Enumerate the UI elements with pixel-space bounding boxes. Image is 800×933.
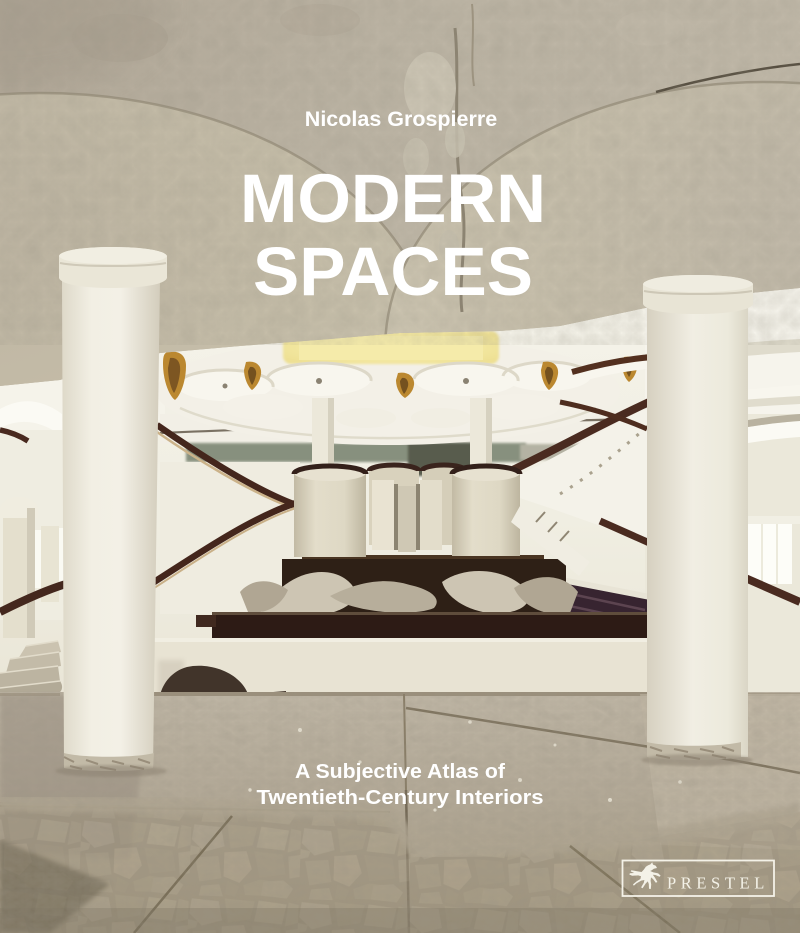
svg-text:Twentieth-Century Interiors: Twentieth-Century Interiors xyxy=(257,786,544,809)
svg-text:MODERN: MODERN xyxy=(240,160,546,237)
svg-text:PRESTEL: PRESTEL xyxy=(667,874,769,893)
svg-text:Nicolas Grospierre: Nicolas Grospierre xyxy=(305,107,497,131)
svg-text:SPACES: SPACES xyxy=(253,233,533,310)
svg-text:A Subjective Atlas of: A Subjective Atlas of xyxy=(295,760,505,783)
